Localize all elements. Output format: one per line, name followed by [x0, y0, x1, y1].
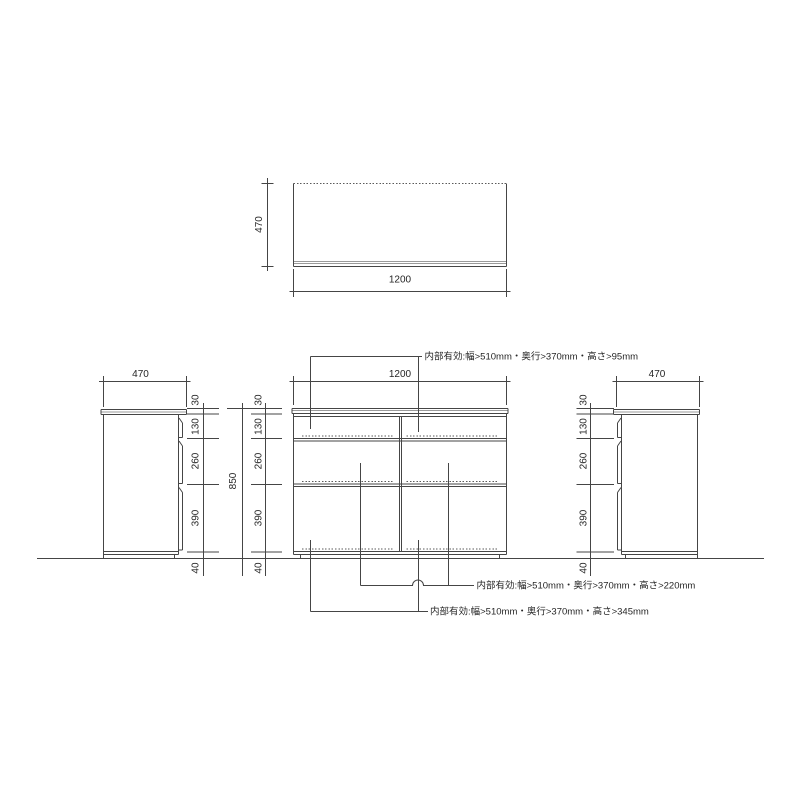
front-segment-label-390: 390 [254, 509, 265, 526]
front-view [290, 376, 511, 558]
top-view-front-edge-inner-lines [294, 262, 506, 264]
right-segment-label-260: 260 [579, 452, 590, 469]
left-depth-dimension [99, 376, 191, 407]
left-segment-label-390: 390 [191, 509, 202, 526]
dim-extension [617, 385, 700, 407]
dim-extension [294, 385, 507, 405]
left-depth-label: 470 [132, 369, 149, 380]
annotation-bottom-compartment: 内部有効:幅>510mm・奥行>370mm・高さ>345mm [430, 606, 649, 618]
left-drawer-front-edges [179, 418, 183, 550]
front-segment-label-40: 40 [254, 562, 265, 574]
technical-drawing-canvas: 470 1200 1200 850 3 [0, 0, 800, 800]
left-side-view [99, 376, 191, 559]
top-view-width-label: 1200 [389, 275, 412, 286]
left-segment-label-40: 40 [191, 562, 202, 574]
right-segment-label-40: 40 [579, 562, 590, 574]
right-segment-label-30: 30 [579, 394, 590, 406]
annotation-top-compartment: 内部有効:幅>510mm・奥行>370mm・高さ>95mm [425, 351, 639, 363]
front-shelf-dotted-edges [302, 436, 499, 549]
right-bottom-board [622, 552, 698, 555]
leader-top-compartment [311, 357, 423, 433]
front-plinth [301, 555, 500, 559]
left-segment-label-260: 260 [191, 452, 202, 469]
right-segment-label-130: 130 [579, 418, 590, 435]
right-segment-label-390: 390 [579, 509, 590, 526]
left-bottom-board [104, 552, 179, 555]
top-view [262, 178, 511, 297]
dim-extension [104, 385, 187, 407]
left-segment-label-30: 30 [191, 394, 202, 406]
top-view-depth-label: 470 [254, 216, 265, 233]
right-depth-dimension [613, 376, 704, 407]
left-segment-label-130: 130 [191, 418, 202, 435]
front-width-label: 1200 [389, 369, 412, 380]
front-segment-label-30: 30 [254, 394, 265, 406]
leader-bottom-compartment [311, 540, 429, 612]
front-total-height-label: 850 [228, 472, 239, 489]
right-side-view [613, 376, 704, 559]
right-drawer-front-edges [618, 418, 622, 550]
annotation-middle-compartment: 内部有効:幅>510mm・奥行>370mm・高さ>220mm [477, 580, 696, 592]
right-depth-label: 470 [649, 369, 666, 380]
front-segment-label-130: 130 [254, 418, 265, 435]
front-segment-label-260: 260 [254, 452, 265, 469]
front-width-dimension [290, 376, 511, 405]
top-view-outline [294, 184, 507, 267]
front-bottom-board [294, 552, 507, 555]
cabinet-dimension-drawing: 470 1200 1200 850 3 [0, 0, 800, 800]
